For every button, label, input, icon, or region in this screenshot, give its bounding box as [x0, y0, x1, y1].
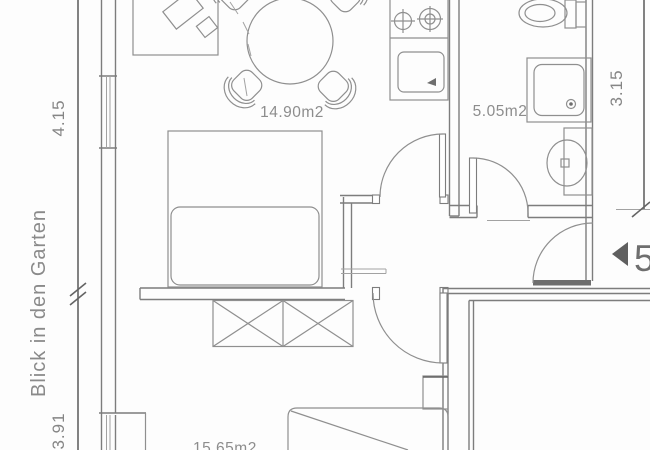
- living-south-wall: [340, 195, 448, 204]
- toilet: [519, 0, 586, 28]
- sideboard: [133, 0, 251, 96]
- chair: [205, 0, 257, 17]
- chair: [323, 0, 375, 19]
- west-wall: [102, 0, 116, 450]
- dimension-right: 3.15: [607, 69, 626, 106]
- floor-plan: 5 14.90m2 5.05m2 15.65m2 4.15 3.91 3.15 …: [0, 0, 650, 450]
- bathroom-area-label: 5.05m2: [473, 103, 528, 120]
- bed-bedroom: [288, 408, 448, 450]
- dining-table: [247, 0, 333, 84]
- bedroom-door: [373, 293, 447, 363]
- stove: [391, 6, 443, 33]
- bedroom-north-wall: [140, 288, 448, 300]
- bathroom-door: [470, 158, 529, 213]
- bed-living: [168, 131, 322, 287]
- dimension-left-lower: 3.91: [49, 412, 68, 449]
- entrance-arrow-icon: [612, 242, 628, 266]
- living-room-door: [380, 134, 446, 197]
- dimension-line-right: [616, 0, 650, 217]
- living-room-area-label: 14.90m2: [260, 104, 324, 121]
- kitchen-sink: [398, 52, 444, 92]
- bedroom-area-label: 15.65m2: [193, 440, 257, 450]
- wardrobe: [213, 301, 353, 347]
- garden-view-note: Blick in den Garten: [28, 209, 50, 397]
- dimension-line-left: [70, 0, 86, 450]
- entrance-number: 5: [634, 238, 650, 279]
- kitchen-bath-wall: [450, 0, 460, 216]
- hall-west-wall: [341, 197, 386, 288]
- washbasin: [547, 128, 592, 195]
- window-bedroom: [99, 413, 146, 450]
- shower: [527, 58, 591, 122]
- floor-plan-drawing: 5 14.90m2 5.05m2 15.65m2 4.15 3.91 3.15 …: [0, 0, 650, 450]
- night-stand: [423, 376, 448, 409]
- entrance-door: [533, 223, 593, 286]
- corridor-wall: [443, 288, 650, 450]
- entrance-marker: 5: [612, 238, 650, 279]
- dimension-left-upper: 4.15: [49, 99, 68, 136]
